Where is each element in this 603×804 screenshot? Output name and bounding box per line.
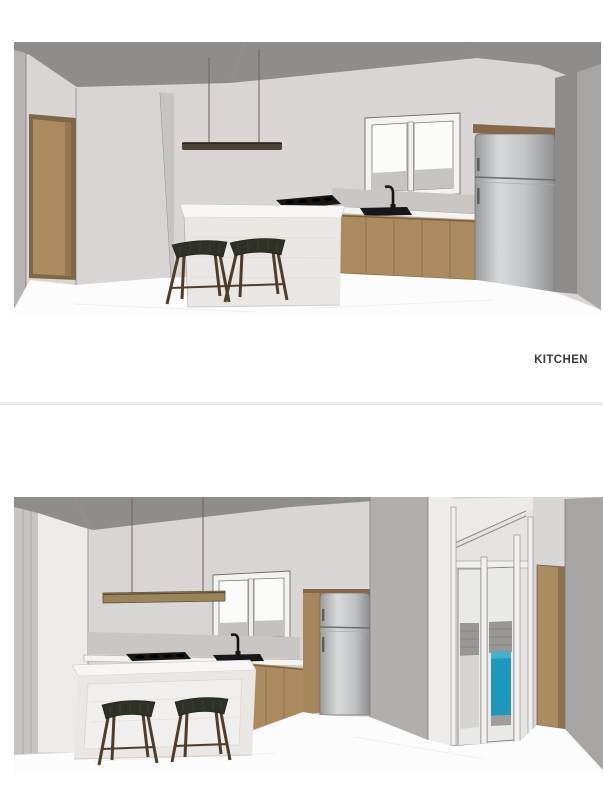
refrigerator [473,124,557,292]
kitchen-island [180,204,345,307]
glass-door [451,497,533,747]
kitchen-render-bottom-svg [14,497,603,775]
entry-door [29,114,76,280]
right-corner-wall [565,497,603,770]
refrigerator [320,593,370,715]
kitchen-render-top [14,42,601,315]
right-wall-shadow [555,72,577,294]
left-wall-strip [14,50,26,308]
sink [360,207,412,216]
partition-wall [76,88,174,285]
timber-side-door [537,565,565,729]
document-page: KITCHEN [0,0,603,804]
kitchen-render-bottom [14,497,603,775]
left-wall-strip [14,507,38,755]
kitchen-label: KITCHEN [534,354,588,366]
blue-panel [491,651,511,716]
section-divider [0,402,603,405]
timber-base-cabinets [335,214,477,280]
window [213,571,290,645]
window [365,113,460,198]
kitchen-render-top-svg [14,42,601,315]
right-corner-wall [577,64,601,310]
hallway-wall [370,497,453,746]
